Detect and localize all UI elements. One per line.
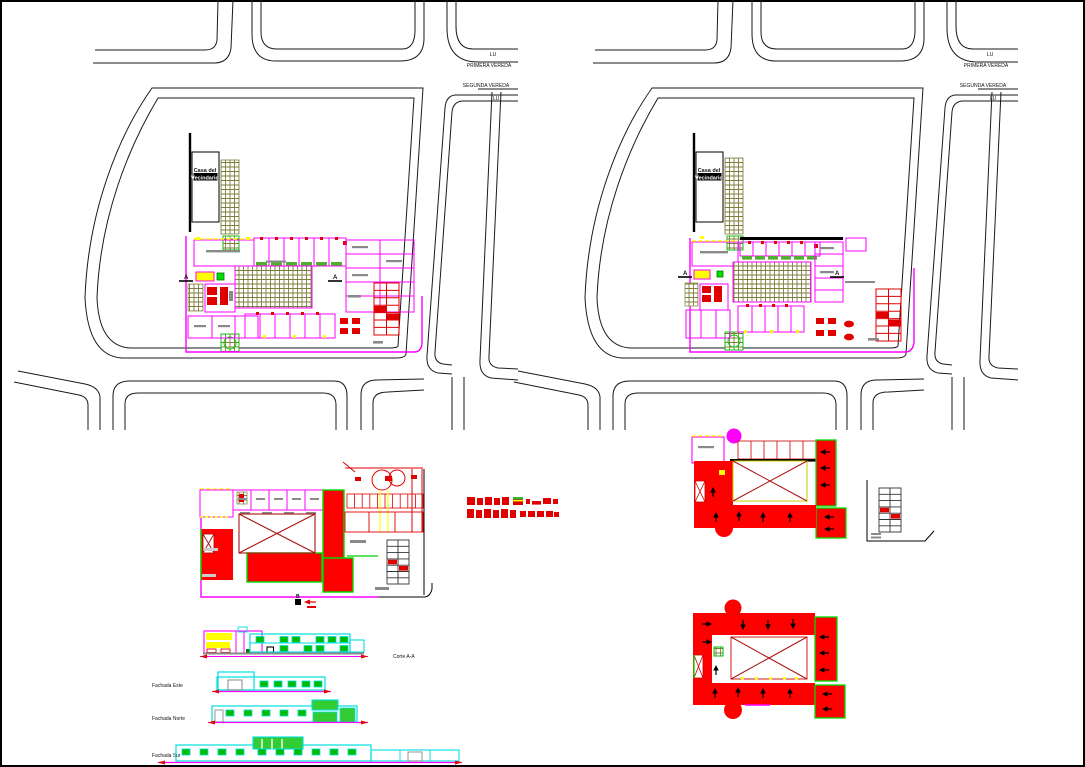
elevation-norte-label: Fachada Norte <box>152 716 185 722</box>
street-label-lu-lower-right: LU <box>990 96 997 102</box>
svg-text:A: A <box>835 271 840 277</box>
neighbor-building <box>192 152 219 222</box>
svg-text:A: A <box>184 275 189 281</box>
courtyard-hatch <box>235 266 312 308</box>
street-label-vereda-upper-right: PRIMERA VEREDA <box>964 63 1009 69</box>
neighbor-building-2 <box>696 152 723 222</box>
roof-slab-horizontal <box>247 553 322 582</box>
street-label-vereda-lower-left: SEGUNDA VEREDA <box>463 83 510 89</box>
garden-strip <box>221 160 239 234</box>
svg-text:B: B <box>296 594 300 600</box>
side-garden <box>188 284 203 311</box>
cad-sheet: LU PRIMERA VEREDA SEGUNDA VEREDA LU Casa… <box>0 0 1085 767</box>
street-label-lu-upper-left: LU <box>490 52 497 58</box>
green-box <box>217 273 224 280</box>
street-label-lu-lower-left: LU <box>493 96 500 102</box>
roof-slab-vertical <box>323 490 344 558</box>
room-nw <box>200 490 233 517</box>
corte-label: Corte A-A <box>393 654 415 660</box>
room-label-mark <box>206 250 240 252</box>
garden-square <box>223 236 239 250</box>
street-label-vereda-lower-right: SEGUNDA VEREDA <box>960 83 1007 89</box>
street-label-vereda-upper-left: PRIMERA VEREDA <box>467 63 512 69</box>
roof-slab-corner <box>323 558 353 592</box>
courtyard-hatch-2 <box>733 262 811 302</box>
street-label-lu-upper-right: LU <box>987 52 994 58</box>
neighbor-building-label-2: Vecindario <box>191 176 219 182</box>
highlight-room <box>196 272 214 281</box>
svg-text:A: A <box>683 271 688 277</box>
elevation-sur-label: Fachada Sur <box>152 753 181 759</box>
black-wall-bar <box>740 237 843 240</box>
neighbor-building-2-label-2: Vecindario <box>695 176 723 182</box>
elevation-este-label: Fachada Este <box>152 683 183 689</box>
svg-text:A: A <box>333 275 338 281</box>
